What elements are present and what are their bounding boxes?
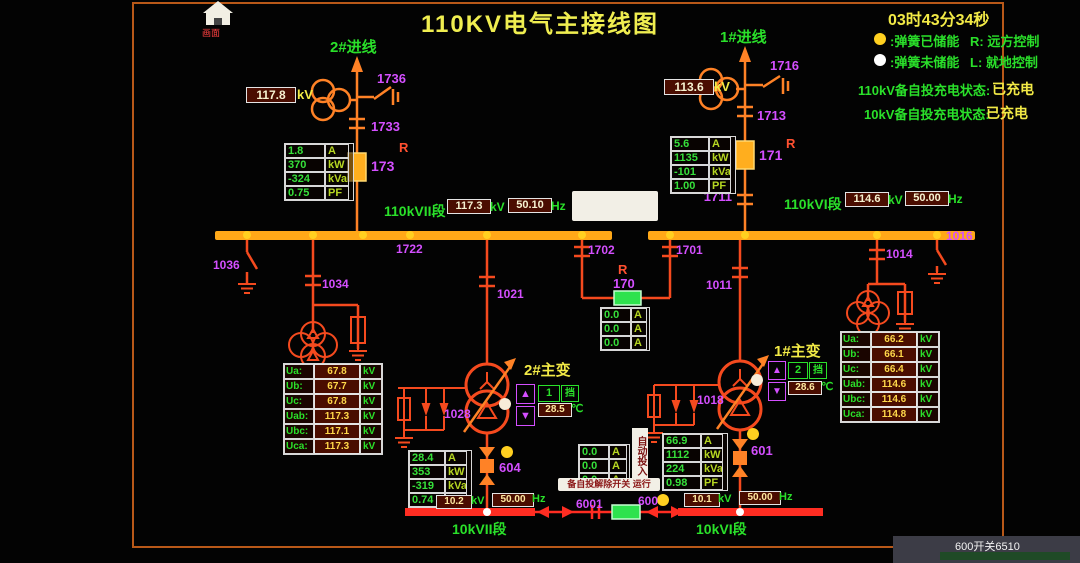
legend-stored-dot (874, 33, 886, 45)
tx2-name: 2#主变 (524, 359, 571, 380)
tap-lower-button-tx1[interactable]: ▼ (768, 382, 786, 401)
bus2-pt-branch (238, 240, 367, 368)
earthing-switch-1036[interactable] (238, 240, 257, 293)
tap-raise-button-tx1[interactable]: ▲ (768, 361, 786, 380)
label-1716: 1716 (770, 58, 799, 73)
bus2-hz-unit: Hz (551, 199, 566, 213)
breaker-600-open[interactable] (612, 505, 640, 519)
incoming2-meter: 1.8A 370kW -324kVar 0.75PF (284, 143, 354, 201)
incoming1-meter: 5.6A 1135kW -101kVar 1.00PF (670, 136, 736, 194)
bus1-kv-unit: kV (888, 193, 903, 207)
bus1-hz-value: 50.00 (905, 191, 949, 206)
home-icon-label: 画面 (202, 26, 220, 39)
taskbar[interactable]: 600开关6510 (893, 536, 1080, 563)
label-1014: 1014 (886, 247, 913, 261)
bus2-hz-value: 50.10 (508, 198, 552, 213)
bus10-left-hz-unit: Hz (532, 493, 545, 505)
tap-unit-tx1: 挡 (809, 362, 827, 379)
remote-flag-173: R (399, 140, 408, 155)
bus10-right-hz-value: 50.00 (739, 491, 781, 505)
remote-flag-170: R (618, 262, 627, 277)
legend-local-text: L: 就地控制 (970, 52, 1038, 71)
bus10-left-kv-unit: kV (471, 495, 484, 507)
white-indicator-tx1 (751, 374, 763, 386)
bus1-name: 110kVI段 (784, 194, 842, 214)
blank-panel (572, 191, 658, 221)
bus2-kv-unit: kV (490, 200, 505, 214)
spring-charged-dot-601 (747, 428, 759, 440)
bus10-right-kv-value: 10.1 (684, 493, 720, 507)
legend-unstored-text: :弹簧未储能 (890, 52, 959, 71)
tap-lower-button-tx2[interactable]: ▼ (516, 406, 535, 426)
earthing-switch-1016[interactable] (928, 240, 946, 283)
status-110kv-label: 110kV备自投充电状态: (858, 80, 990, 99)
label-170: 170 (613, 276, 635, 291)
tap-unit-tx2: 挡 (561, 385, 579, 402)
label-173: 173 (371, 158, 394, 174)
tap-raise-button-tx2[interactable]: ▲ (516, 384, 535, 404)
label-1018: 1018 (697, 393, 724, 407)
incoming2-name: 2#进线 (330, 36, 377, 57)
temp-value-tx2: 28.5 (538, 403, 572, 417)
label-604: 604 (499, 460, 521, 475)
busbar-10kv-II[interactable] (405, 508, 535, 516)
bus-junction-dot (483, 508, 491, 516)
incoming2-kv-unit: kV (297, 87, 313, 102)
label-1733: 1733 (371, 119, 400, 134)
label-600: 600 (638, 494, 658, 508)
voltage-transformer (289, 322, 337, 368)
label-1702: 1702 (588, 243, 615, 257)
bus-junction-dot (736, 508, 744, 516)
busbar-110kv-I[interactable] (648, 231, 975, 240)
label-1713: 1713 (757, 108, 786, 123)
spring-charged-dot-600 (657, 494, 669, 506)
label-1016: 1016 (946, 229, 973, 243)
bus10-right-name: 10kVI段 (696, 519, 747, 539)
tx1-meter: 66.9A 1112kW 224kVar 0.98PF (662, 433, 728, 491)
status-10kv-label: 10kV备自投充电状态: (864, 104, 990, 123)
tap-position-tx1: 2 (788, 362, 808, 379)
breaker-604-closed[interactable] (479, 447, 495, 485)
incoming1-kv-unit: kV (714, 79, 730, 94)
bus10-right-hz-unit: Hz (779, 491, 792, 503)
auto-transfer-release-tag: 备自投解除开关 运行 (558, 478, 660, 491)
status-10kv-value: 已充电 (986, 103, 1028, 123)
disconnector-1716[interactable] (745, 76, 788, 94)
tx1-name: 1#主变 (774, 340, 821, 361)
label-1701: 1701 (676, 243, 703, 257)
label-601: 601 (751, 443, 773, 458)
disconnector-1736[interactable] (357, 87, 398, 105)
breaker-171-closed[interactable] (736, 141, 754, 169)
breaker-170-open[interactable] (614, 291, 641, 305)
label-6001: 6001 (576, 497, 603, 511)
legend-remote-text: R: 远方控制 (970, 31, 1039, 50)
temp-unit-tx2: ℃ (571, 402, 583, 415)
bus1-kv-value: 114.6 (845, 192, 889, 207)
incoming2-kv-value: 117.8 (246, 87, 296, 103)
page-title: 110KV电气主接线图 (390, 4, 690, 39)
transformer-2-symbol[interactable] (464, 358, 516, 433)
label-1021: 1021 (497, 287, 524, 301)
pt-fuse-branch (313, 305, 367, 360)
label-171: 171 (759, 147, 782, 163)
white-indicator-tx2 (499, 398, 511, 410)
spring-charged-dot-604 (501, 446, 513, 458)
pt-fuse-branch (896, 284, 914, 333)
transformer-1-symbol[interactable] (717, 355, 769, 430)
bridge-meter: 0.0A 0.0A 0.0A (600, 307, 650, 351)
scada-screen: 110KV电气主接线图 03时43分34秒 画面 :弹簧已储能 R: 远方控制 … (0, 0, 1080, 563)
bus2-name: 110kVII段 (384, 201, 446, 221)
remote-flag-171: R (786, 136, 795, 151)
label-1736: 1736 (377, 71, 406, 86)
bus10-left-hz-value: 50.00 (492, 493, 534, 507)
status-110kv-value: 已充电 (992, 79, 1034, 99)
legend-unstored-dot (874, 54, 886, 66)
clock: 03时43分34秒 (888, 6, 989, 30)
auto-transfer-vertical-tag: 自动投入 (632, 428, 648, 484)
label-1722: 1722 (396, 242, 423, 256)
temp-value-tx1: 28.6 (788, 381, 822, 395)
bus10-left-name: 10kVII段 (452, 519, 506, 539)
bus2-kv-value: 117.3 (447, 199, 491, 214)
breaker-601-closed[interactable] (732, 439, 748, 477)
tap-position-tx2: 1 (538, 385, 560, 402)
legend-stored-text: :弹簧已储能 (890, 31, 959, 50)
bus1-hz-unit: Hz (948, 192, 963, 206)
bus10-right-kv-unit: kV (718, 493, 731, 505)
label-1036: 1036 (213, 258, 240, 272)
label-1028: 1028 (444, 407, 471, 421)
incoming1-kv-value: 113.6 (664, 79, 714, 95)
busbar-10kv-I[interactable] (678, 508, 823, 516)
bus1-voltage-panel: Ua:66.2kV Ub:66.1kV Uc:66.4kV Uab:114.6k… (840, 331, 940, 423)
temp-unit-tx1: ℃ (821, 380, 833, 393)
voltage-transformer (847, 291, 889, 335)
bus2-voltage-panel: Ua:67.8kV Ub:67.7kV Uc:67.8kV Uab:117.3k… (283, 363, 383, 455)
incoming1-name: 1#进线 (720, 26, 767, 47)
label-1034: 1034 (322, 277, 349, 291)
taskbar-strip (940, 552, 1070, 560)
home-icon[interactable] (203, 1, 233, 25)
bus10-left-kv-value: 10.2 (436, 495, 472, 509)
label-1011: 1011 (698, 278, 732, 292)
